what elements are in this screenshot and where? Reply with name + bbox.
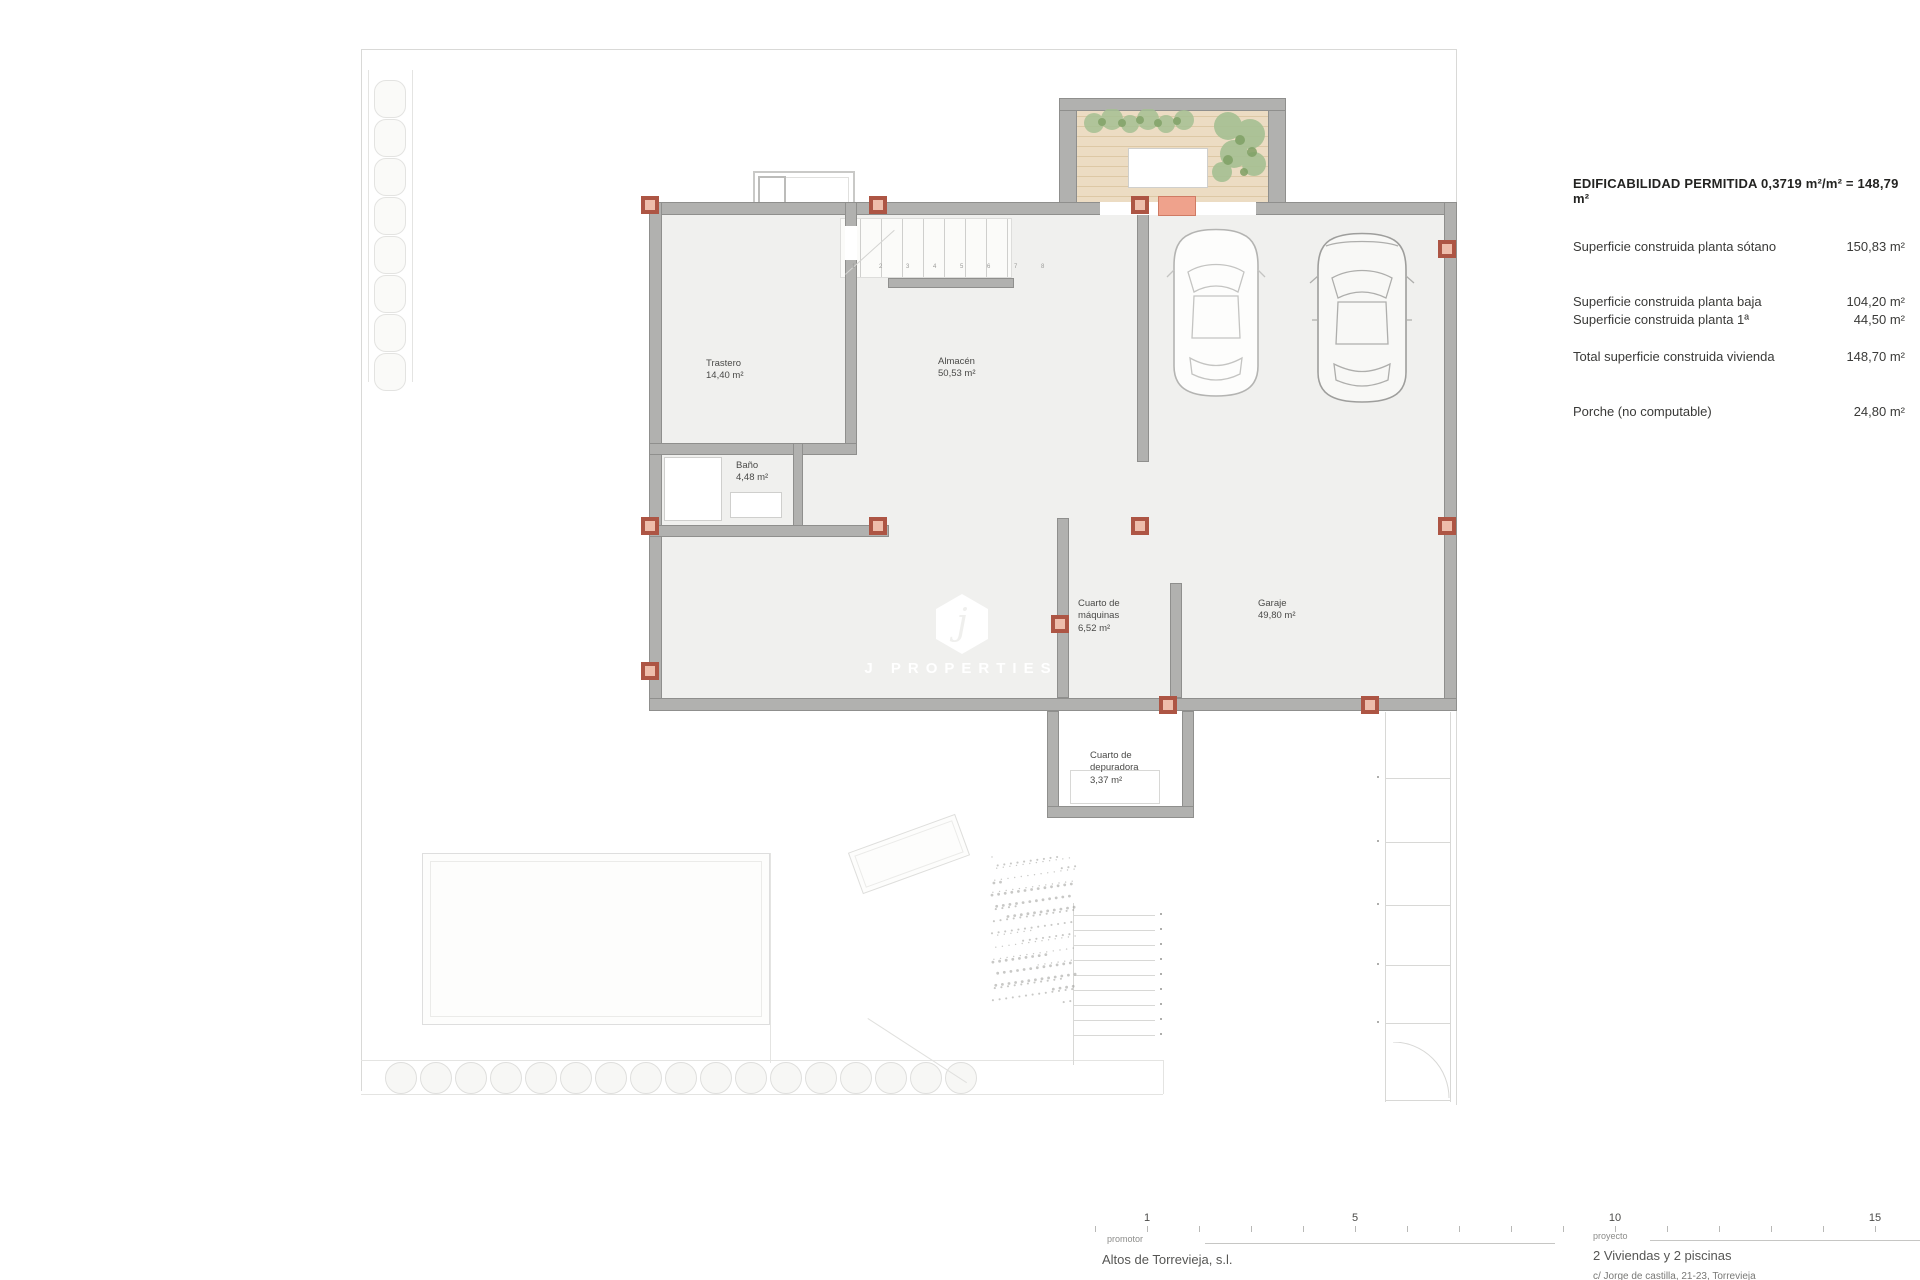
- scale-tick: [1147, 1226, 1148, 1232]
- wall-depuradora-left: [1047, 711, 1059, 818]
- hedge-bush: [665, 1062, 697, 1094]
- structural-column: [1361, 696, 1379, 714]
- structural-column: [1438, 240, 1456, 258]
- hedge-bush: [805, 1062, 837, 1094]
- promotor-label: promotor: [1107, 1234, 1143, 1244]
- wall-maquinas-right: [1170, 583, 1182, 698]
- stair-step-line: [1073, 915, 1155, 916]
- car-left: [1164, 226, 1268, 402]
- stair-step-number-mark: [1160, 1033, 1162, 1035]
- structural-column: [1131, 517, 1149, 535]
- scale-label: 10: [1609, 1212, 1621, 1224]
- room-label-garaje: Garaje49,80 m²: [1258, 598, 1296, 623]
- stair-step-number-mark: [1160, 973, 1162, 975]
- shower-tray: [664, 457, 722, 521]
- ramp-rung: [1385, 965, 1451, 966]
- proyecto-label: proyecto: [1593, 1231, 1628, 1241]
- scale-tick: [1667, 1226, 1668, 1232]
- ramp-number-mark: [1377, 840, 1379, 842]
- hedge-bush: [374, 314, 406, 352]
- stairs-step-numbers: 1 2 3 4 5 6 7 8: [852, 264, 1055, 270]
- room-label-almacen: Almacén50,53 m²: [938, 356, 976, 381]
- scale-tick: [1095, 1226, 1096, 1232]
- hedge-bush: [560, 1062, 592, 1094]
- ramp-edge-right: [1450, 712, 1451, 1102]
- scale-tick: [1355, 1226, 1356, 1232]
- stair-step-line: [1073, 960, 1155, 961]
- boundary-left: [361, 49, 362, 1091]
- stair-step-line: [1073, 1035, 1155, 1036]
- trastero-door-opening: [845, 226, 857, 260]
- ramp-number-mark: [1377, 776, 1379, 778]
- stair-step-line: [1073, 945, 1155, 946]
- hedge-bush: [420, 1062, 452, 1094]
- stair-step-number-mark: [1160, 988, 1162, 990]
- hedge-bush: [374, 353, 406, 391]
- ramp-number-mark: [1377, 903, 1379, 905]
- info-row-baja: Superficie construida planta baja104,20 …: [1573, 294, 1905, 309]
- hedge-bush: [490, 1062, 522, 1094]
- scale-tick: [1771, 1226, 1772, 1232]
- hedge-bush: [385, 1062, 417, 1094]
- hedge-bush: [525, 1062, 557, 1094]
- structural-column: [869, 517, 887, 535]
- porch-table: [1128, 148, 1208, 188]
- porch-entry-step: [1158, 196, 1196, 216]
- watermark-letter: j: [956, 602, 967, 643]
- ramp-bottom-line: [1385, 1100, 1451, 1101]
- proyecto-rule: [1650, 1240, 1920, 1241]
- ramp-rung: [1385, 842, 1451, 843]
- ramp-rung: [1385, 778, 1451, 779]
- proyecto-name: 2 Viviendas y 2 piscinas: [1593, 1248, 1732, 1263]
- floorplan-sheet: 1 2 3 4 5 6 7 8 Trastero14,40 m²: [0, 0, 1920, 1280]
- structural-column: [641, 662, 659, 680]
- sink: [730, 492, 782, 518]
- scale-tick: [1459, 1226, 1460, 1232]
- info-row-sotano: Superficie construida planta sótano150,8…: [1573, 239, 1905, 254]
- scale-tick: [1719, 1226, 1720, 1232]
- hedge-bush: [630, 1062, 662, 1094]
- wall-top: [649, 202, 1457, 215]
- stair-step-number-mark: [1160, 913, 1162, 915]
- structural-column: [1051, 615, 1069, 633]
- boundary-bottom-lower: [361, 1094, 1163, 1095]
- stair-step-number-mark: [1160, 943, 1162, 945]
- boundary-bottom-upper: [361, 1060, 1163, 1061]
- room-label-bano: Baño4,48 m²: [736, 460, 768, 485]
- wall-depuradora-right: [1182, 711, 1194, 818]
- hedge-bush: [374, 197, 406, 235]
- wall-bano-bottom: [649, 525, 889, 537]
- hedge-bush: [455, 1062, 487, 1094]
- info-panel: EDIFICABILIDAD PERMITIDA 0,3719 m²/m² = …: [1573, 176, 1905, 419]
- ramp-rung: [1385, 1023, 1451, 1024]
- scale-tick: [1563, 1226, 1564, 1232]
- scale-label: 15: [1869, 1212, 1881, 1224]
- wall-depuradora-bottom: [1047, 806, 1194, 818]
- left-hedge-row: [374, 80, 406, 391]
- hedge-bush: [374, 236, 406, 274]
- stair-step-line: [1073, 1005, 1155, 1006]
- bottom-hedge-row: [385, 1062, 977, 1094]
- promotor-name: Altos de Torrevieja, s.l.: [1102, 1252, 1233, 1267]
- structural-column: [1131, 196, 1149, 214]
- scale-tick: [1823, 1226, 1824, 1232]
- pool: [422, 853, 770, 1025]
- sun-lounger: [848, 814, 970, 894]
- info-row-porche: Porche (no computable)24,80 m²: [1573, 404, 1905, 419]
- porch-wall-left: [1059, 98, 1077, 208]
- scale-label: 1: [1144, 1212, 1150, 1224]
- stair-step-line: [1073, 930, 1155, 931]
- hedge-bush: [374, 275, 406, 313]
- wall-stairs-landing: [888, 278, 1014, 288]
- wall-trastero-bottom: [649, 443, 857, 455]
- structural-column: [1438, 517, 1456, 535]
- stair-step-line: [1073, 1020, 1155, 1021]
- structural-column: [1159, 696, 1177, 714]
- porch-plant-corner: [1206, 110, 1268, 186]
- hedge-bush: [875, 1062, 907, 1094]
- room-label-depuradora: Cuarto dedepuradora3,37 m²: [1090, 750, 1139, 787]
- proyecto-address: c/ Jorge de castilla, 21-23, Torrevieja: [1593, 1271, 1756, 1280]
- hedge-bush: [910, 1062, 942, 1094]
- wall-right: [1444, 202, 1457, 711]
- scale-tick: [1199, 1226, 1200, 1232]
- stair-step-number-mark: [1160, 958, 1162, 960]
- watermark-brand: J PROPERTIES: [841, 660, 1081, 677]
- pool-inner-edge: [430, 861, 762, 1017]
- hedge-bush: [735, 1062, 767, 1094]
- ramp-edge-left: [1385, 712, 1386, 1102]
- structural-column: [641, 517, 659, 535]
- scale-tick: [1251, 1226, 1252, 1232]
- wall-bottom: [649, 698, 1457, 711]
- left-fence-line-b: [412, 70, 413, 382]
- stair-step-number-mark: [1160, 1003, 1162, 1005]
- structural-column: [641, 196, 659, 214]
- wall-bano-right: [793, 443, 803, 537]
- porch-wall-right: [1268, 98, 1286, 208]
- stair-step-line: [1073, 990, 1155, 991]
- structural-column: [869, 196, 887, 214]
- hedge-bush: [840, 1062, 872, 1094]
- ramp-number-mark: [1377, 963, 1379, 965]
- car-right: [1306, 230, 1418, 408]
- info-title: EDIFICABILIDAD PERMITIDA 0,3719 m²/m² = …: [1573, 176, 1905, 206]
- ramp-number-mark: [1377, 1021, 1379, 1023]
- stair-step-line: [1073, 975, 1155, 976]
- stair-step-number-mark: [1160, 1018, 1162, 1020]
- hedge-bush: [374, 119, 406, 157]
- porch-plants-top: [1082, 109, 1202, 141]
- room-label-trastero: Trastero14,40 m²: [706, 358, 744, 383]
- wall-garage-divider: [1137, 214, 1149, 462]
- scale-tick: [1303, 1226, 1304, 1232]
- info-row-total: Total superficie construida vivienda148,…: [1573, 349, 1905, 364]
- boundary-top: [361, 49, 1457, 50]
- left-fence-line-a: [368, 70, 369, 382]
- scale-tick: [1407, 1226, 1408, 1232]
- promotor-rule: [1205, 1243, 1555, 1244]
- terrace-divider-line: [770, 853, 771, 1063]
- scale-tick: [1875, 1226, 1876, 1232]
- hedge-bush: [700, 1062, 732, 1094]
- stair-step-number-mark: [1160, 928, 1162, 930]
- gate-swing-arc: [1392, 1042, 1450, 1100]
- ramp-rung: [1385, 905, 1451, 906]
- wall-left: [649, 202, 662, 711]
- hedge-bush: [770, 1062, 802, 1094]
- hedge-bush: [374, 158, 406, 196]
- hedge-bush: [374, 80, 406, 118]
- hedge-bush: [595, 1062, 627, 1094]
- room-label-maquinas: Cuarto demáquinas6,52 m²: [1078, 598, 1120, 635]
- info-row-planta1: Superficie construida planta 1ª44,50 m²: [1573, 312, 1905, 327]
- boundary-bottom-end: [1163, 1060, 1164, 1094]
- scale-tick: [1511, 1226, 1512, 1232]
- shrub-cluster: [990, 855, 1078, 1007]
- scale-label: 5: [1352, 1212, 1358, 1224]
